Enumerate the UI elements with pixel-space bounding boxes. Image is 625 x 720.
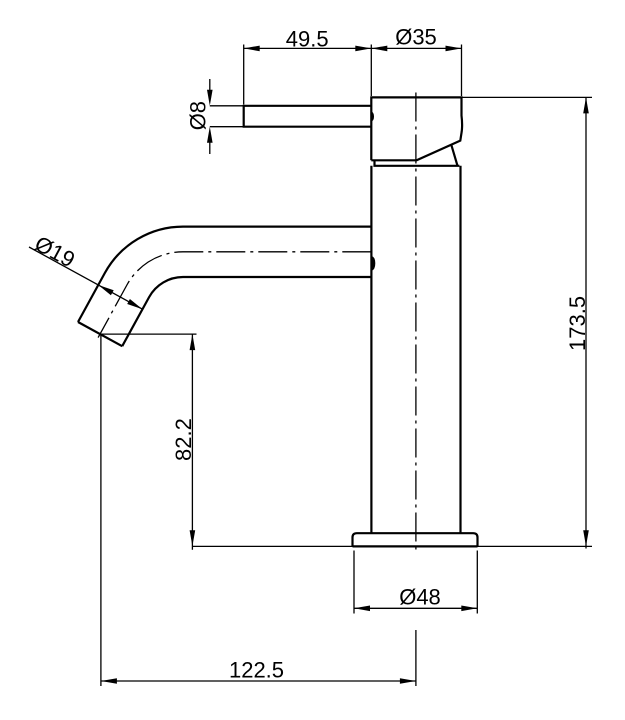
svg-text:122.5: 122.5 [229,658,284,683]
svg-text:Ø35: Ø35 [395,25,437,50]
svg-text:Ø8: Ø8 [186,101,211,130]
svg-text:173.5: 173.5 [565,296,590,351]
svg-text:Ø48: Ø48 [399,585,441,610]
svg-text:49.5: 49.5 [286,26,329,51]
svg-text:82.2: 82.2 [171,418,196,461]
